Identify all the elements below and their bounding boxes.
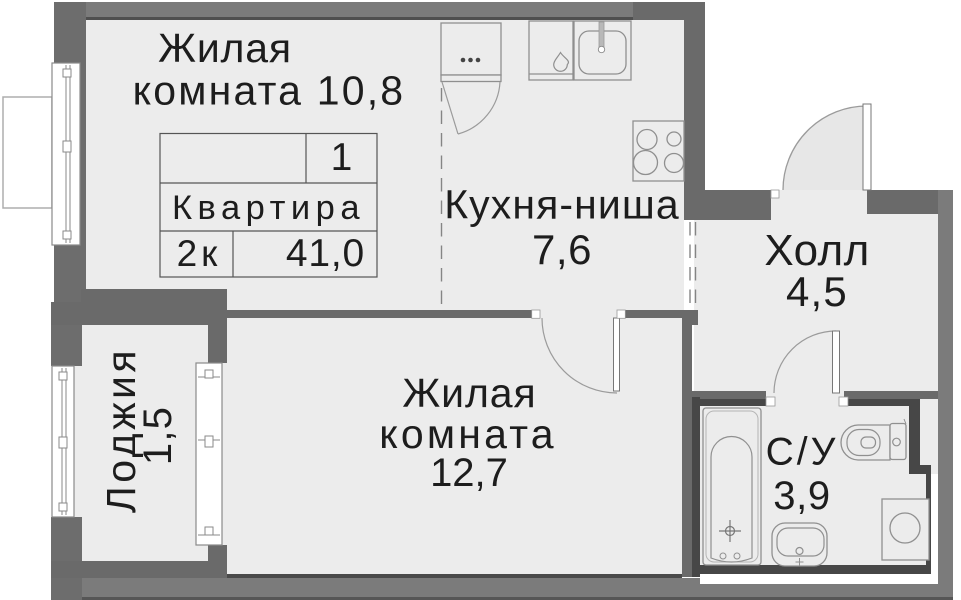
svg-text:Кухня-ниша: Кухня-ниша (444, 182, 680, 228)
svg-text:3,9: 3,9 (773, 474, 830, 518)
svg-text:12,7: 12,7 (430, 451, 508, 495)
svg-text:С/У: С/У (766, 431, 839, 474)
svg-text:Квартира: Квартира (172, 189, 365, 227)
svg-text:1: 1 (331, 136, 353, 179)
svg-text:Жилая: Жилая (158, 25, 292, 71)
svg-text:41,0: 41,0 (286, 232, 365, 275)
svg-text:комната 10,8: комната 10,8 (133, 68, 406, 114)
svg-text:1,5: 1,5 (136, 406, 180, 465)
svg-text:2к: 2к (177, 233, 222, 274)
svg-text:4,5: 4,5 (786, 268, 848, 315)
svg-text:Жилая: Жилая (402, 370, 536, 416)
svg-text:7,6: 7,6 (532, 226, 592, 273)
